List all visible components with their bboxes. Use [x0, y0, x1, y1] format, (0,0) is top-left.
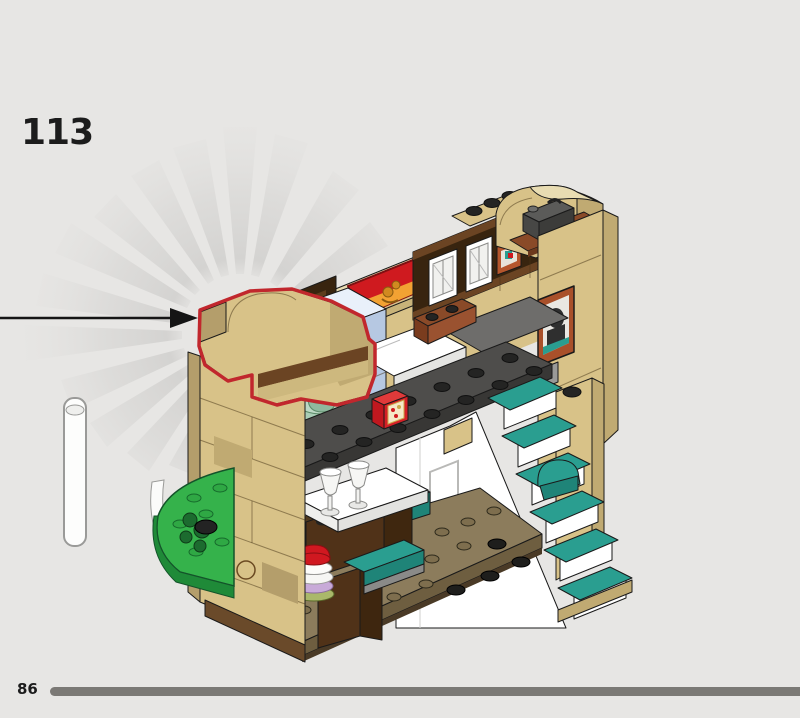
step-number: 113 [21, 112, 93, 153]
instruction-illustration [0, 0, 800, 718]
street-lamp [64, 398, 86, 546]
progress-bar-fill [50, 687, 800, 696]
window-right [466, 236, 492, 292]
green-baseplate [153, 468, 234, 598]
instruction-page: { "page": { "step_number": "113", "foote… [0, 0, 800, 718]
progress-track [50, 687, 800, 696]
hook-piece [237, 561, 255, 579]
page-number: 86 [17, 680, 38, 698]
black-cauldron [195, 520, 217, 534]
